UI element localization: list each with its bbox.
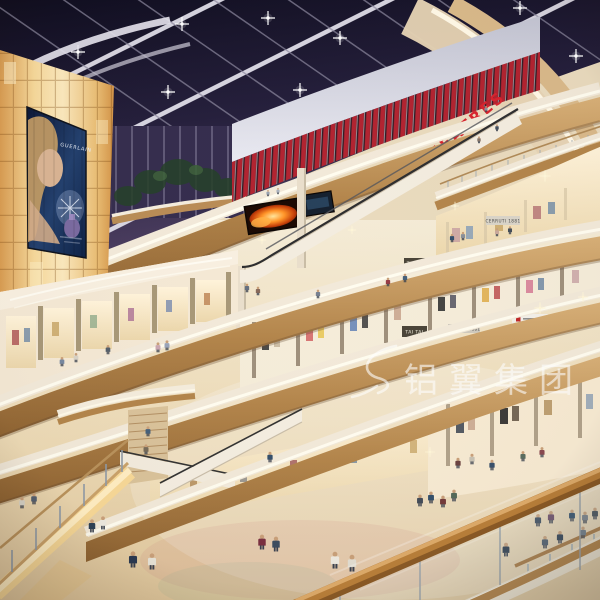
mall-atrium-scene: THEATRES xyxy=(0,0,600,600)
mall-atrium-rendering: THEATRES xyxy=(0,0,600,600)
vignette-overlay xyxy=(0,0,600,600)
